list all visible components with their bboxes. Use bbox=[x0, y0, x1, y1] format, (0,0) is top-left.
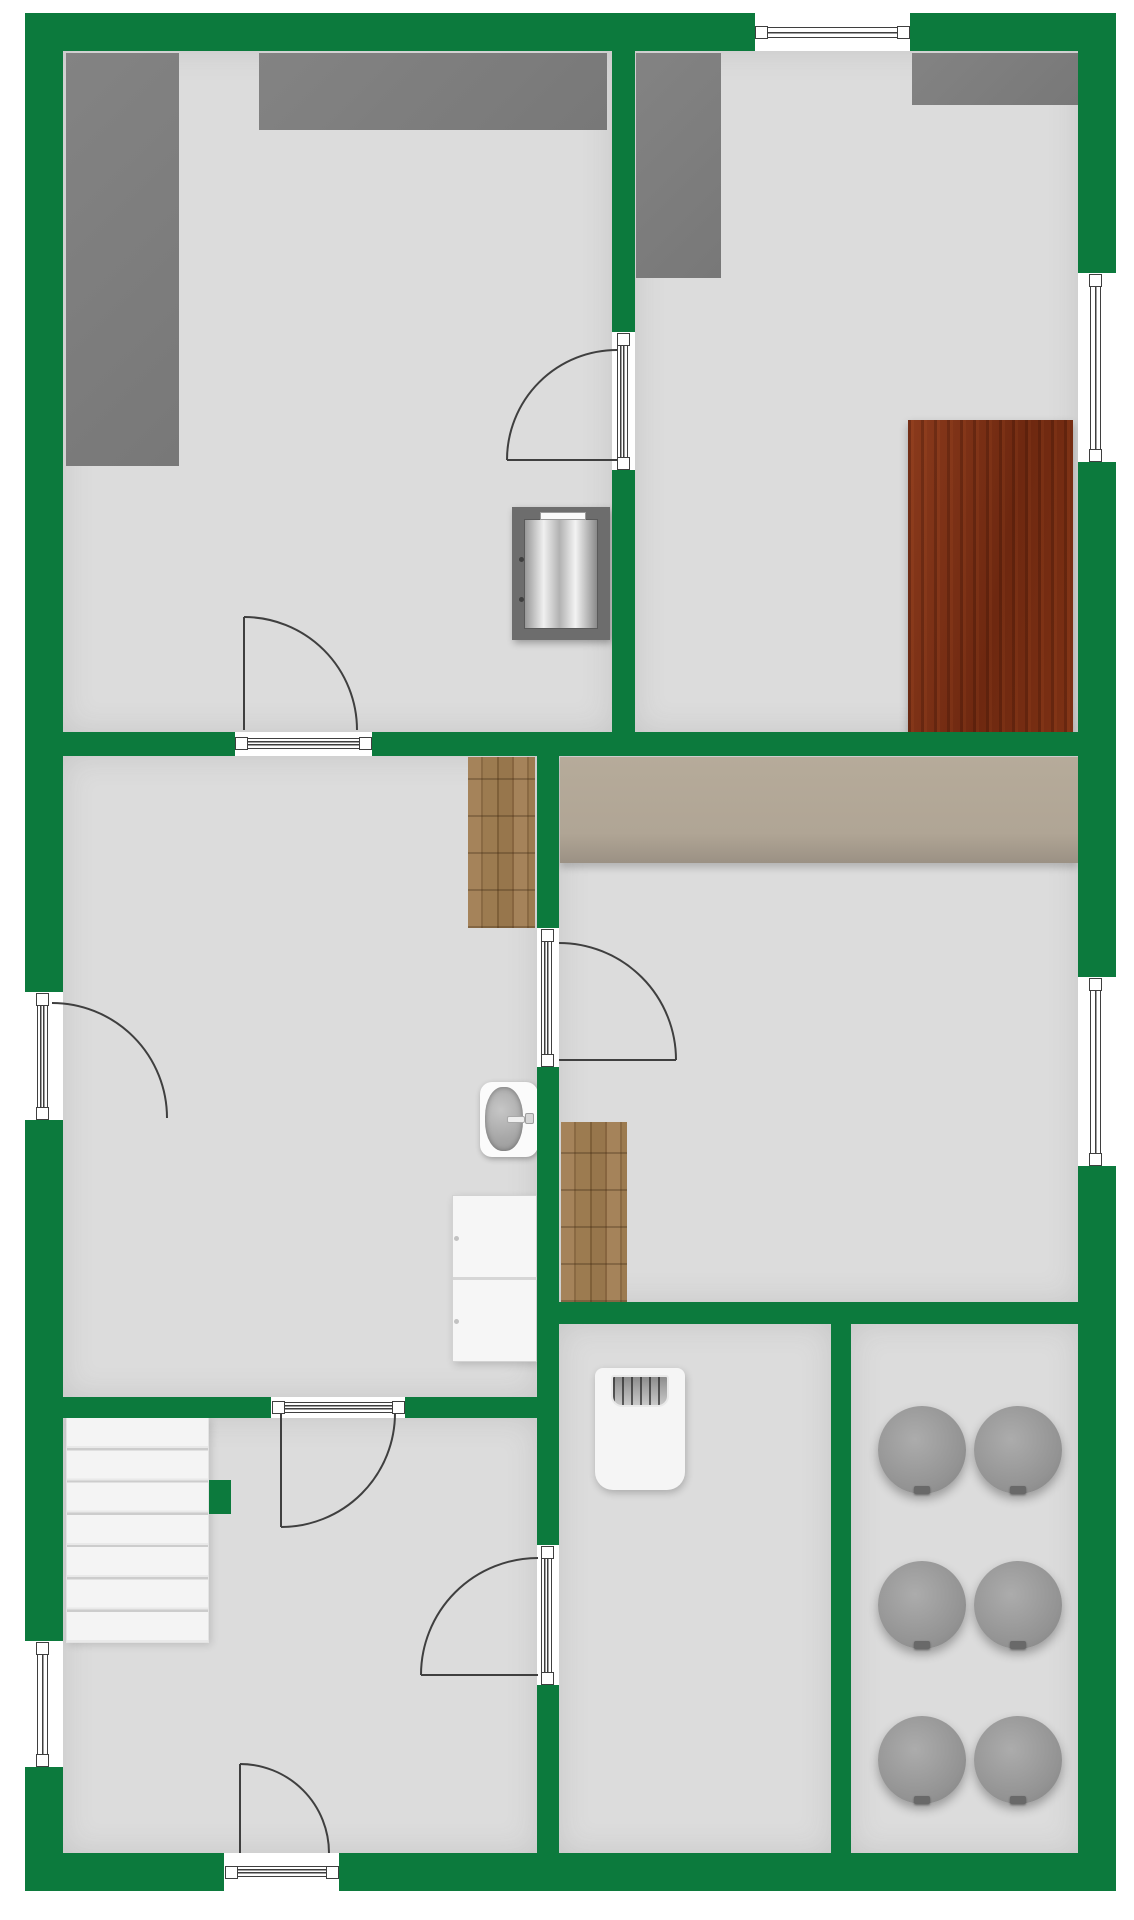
window-top-wall-post bbox=[897, 26, 910, 39]
door-bottom-wall-entrance-post bbox=[225, 1866, 238, 1879]
window-left-wall-lower bbox=[37, 1642, 48, 1766]
door-middle-wall bbox=[237, 738, 370, 749]
stool-foot-tab bbox=[914, 1486, 930, 1494]
stool-foot-tab bbox=[1010, 1796, 1026, 1804]
counter-top-left-horizontal bbox=[259, 53, 607, 130]
stove bbox=[512, 507, 610, 640]
stove-hinge bbox=[519, 597, 524, 602]
sink-faucet bbox=[507, 1116, 525, 1123]
wall-middle-horizontal bbox=[63, 732, 1078, 756]
wood-floor-strip-lower bbox=[561, 1122, 627, 1302]
staircase bbox=[66, 1417, 209, 1643]
stove-hinge bbox=[519, 557, 524, 562]
door-middle-divider-upper bbox=[541, 930, 552, 1065]
wash-basin bbox=[480, 1082, 538, 1157]
cabinet bbox=[452, 1195, 537, 1362]
door-lower-left-wall-post bbox=[392, 1401, 405, 1414]
door-lower-left-wall bbox=[273, 1402, 403, 1413]
stool-foot-tab bbox=[1010, 1486, 1026, 1494]
floor-plan bbox=[0, 0, 1134, 1920]
counter-top-left-vertical bbox=[66, 53, 179, 466]
window-right-wall-upper-post bbox=[1089, 449, 1102, 462]
wall-divider-middle bbox=[537, 756, 559, 1853]
window-right-wall-upper-post bbox=[1089, 274, 1102, 287]
heater-vent-grille bbox=[611, 1375, 669, 1407]
door-lower-left-wall-post bbox=[272, 1401, 285, 1414]
window-left-wall-lower-post bbox=[36, 1754, 49, 1767]
door-middle-divider-upper-post bbox=[541, 929, 554, 942]
door-window-left-wall-post bbox=[36, 1107, 49, 1120]
stool bbox=[878, 1716, 966, 1804]
stool bbox=[878, 1406, 966, 1494]
door-window-left-wall bbox=[37, 993, 48, 1119]
stool-foot-tab bbox=[914, 1641, 930, 1649]
door-bottom-wall-entrance bbox=[226, 1866, 337, 1877]
door-top-divider bbox=[617, 334, 628, 468]
window-top-wall bbox=[755, 27, 910, 38]
wall-bottom-divider bbox=[831, 1324, 851, 1853]
door-middle-wall-post bbox=[235, 737, 248, 750]
stool bbox=[974, 1561, 1062, 1649]
window-top-wall-post bbox=[755, 26, 768, 39]
cabinet-divider bbox=[453, 1277, 538, 1280]
stool bbox=[878, 1561, 966, 1649]
window-right-wall-lower bbox=[1090, 978, 1101, 1165]
sink-faucet-base bbox=[525, 1113, 534, 1124]
door-middle-divider-lower-post bbox=[541, 1672, 554, 1685]
door-bottom-wall-entrance-post bbox=[326, 1866, 339, 1879]
counter-top-right-vertical bbox=[636, 53, 721, 278]
stool-foot-tab bbox=[1010, 1641, 1026, 1649]
wall-outer-bottom bbox=[25, 1853, 1116, 1891]
worktop-beige bbox=[560, 757, 1078, 863]
door-window-left-wall-post bbox=[36, 993, 49, 1006]
stool bbox=[974, 1716, 1062, 1804]
wood-floor-strip-upper bbox=[468, 757, 535, 928]
window-left-wall-lower-post bbox=[36, 1642, 49, 1655]
cabinet-hinge bbox=[454, 1236, 459, 1241]
window-right-wall-upper bbox=[1090, 274, 1101, 461]
door-middle-divider-lower bbox=[541, 1547, 552, 1683]
stove-top-trim bbox=[540, 512, 586, 520]
door-top-divider-post bbox=[617, 457, 630, 470]
door-top-divider-post bbox=[617, 333, 630, 346]
wall-outer-top bbox=[25, 13, 1116, 51]
dining-table bbox=[908, 420, 1073, 732]
wall-lower-right-horizontal bbox=[559, 1302, 1078, 1324]
wall-stair-stub bbox=[209, 1480, 231, 1514]
window-right-wall-lower-post bbox=[1089, 1153, 1102, 1166]
counter-top-right-horizontal bbox=[912, 53, 1078, 105]
cabinet-hinge bbox=[454, 1319, 459, 1324]
wall-outer-left bbox=[25, 13, 63, 1891]
stove-door-panel bbox=[524, 519, 598, 629]
stool-foot-tab bbox=[914, 1796, 930, 1804]
window-right-wall-lower-post bbox=[1089, 978, 1102, 991]
water-heater bbox=[595, 1368, 685, 1490]
door-middle-divider-upper-post bbox=[541, 1054, 554, 1067]
door-middle-divider-lower-post bbox=[541, 1546, 554, 1559]
door-middle-wall-post bbox=[359, 737, 372, 750]
stool bbox=[974, 1406, 1062, 1494]
